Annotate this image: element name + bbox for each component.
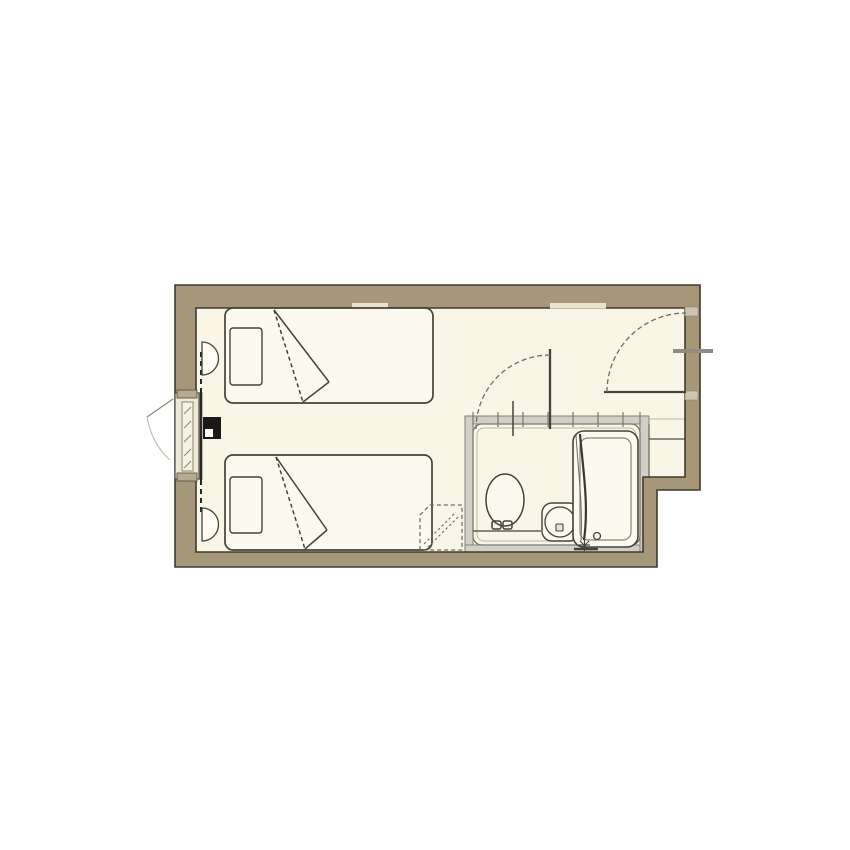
toilet-bowl — [486, 474, 524, 526]
floor-plan-canvas: Hotel twin room floor plan — [0, 0, 850, 850]
bedside-console — [203, 417, 221, 439]
top-wall-notch-2 — [550, 303, 606, 309]
bathtub-rim — [573, 431, 638, 547]
window-bracket-bottom — [177, 473, 197, 481]
window-bracket-top — [177, 390, 197, 398]
window-sash — [182, 402, 193, 471]
bathroom-wall-top — [465, 416, 648, 424]
bed-2-pillow — [230, 477, 262, 533]
door-jamb-bottom — [685, 391, 698, 400]
door-jamb-top — [685, 307, 698, 316]
bathtub — [573, 431, 638, 551]
bathroom — [465, 412, 649, 553]
bed-1-pillow — [230, 328, 262, 385]
twin-bed-2 — [225, 455, 432, 550]
twin-bed-1 — [225, 308, 433, 403]
bathroom-wall-left — [465, 416, 473, 553]
sink-drain — [556, 524, 563, 531]
entrance-threshold — [673, 349, 713, 353]
floor-plan — [147, 285, 713, 567]
